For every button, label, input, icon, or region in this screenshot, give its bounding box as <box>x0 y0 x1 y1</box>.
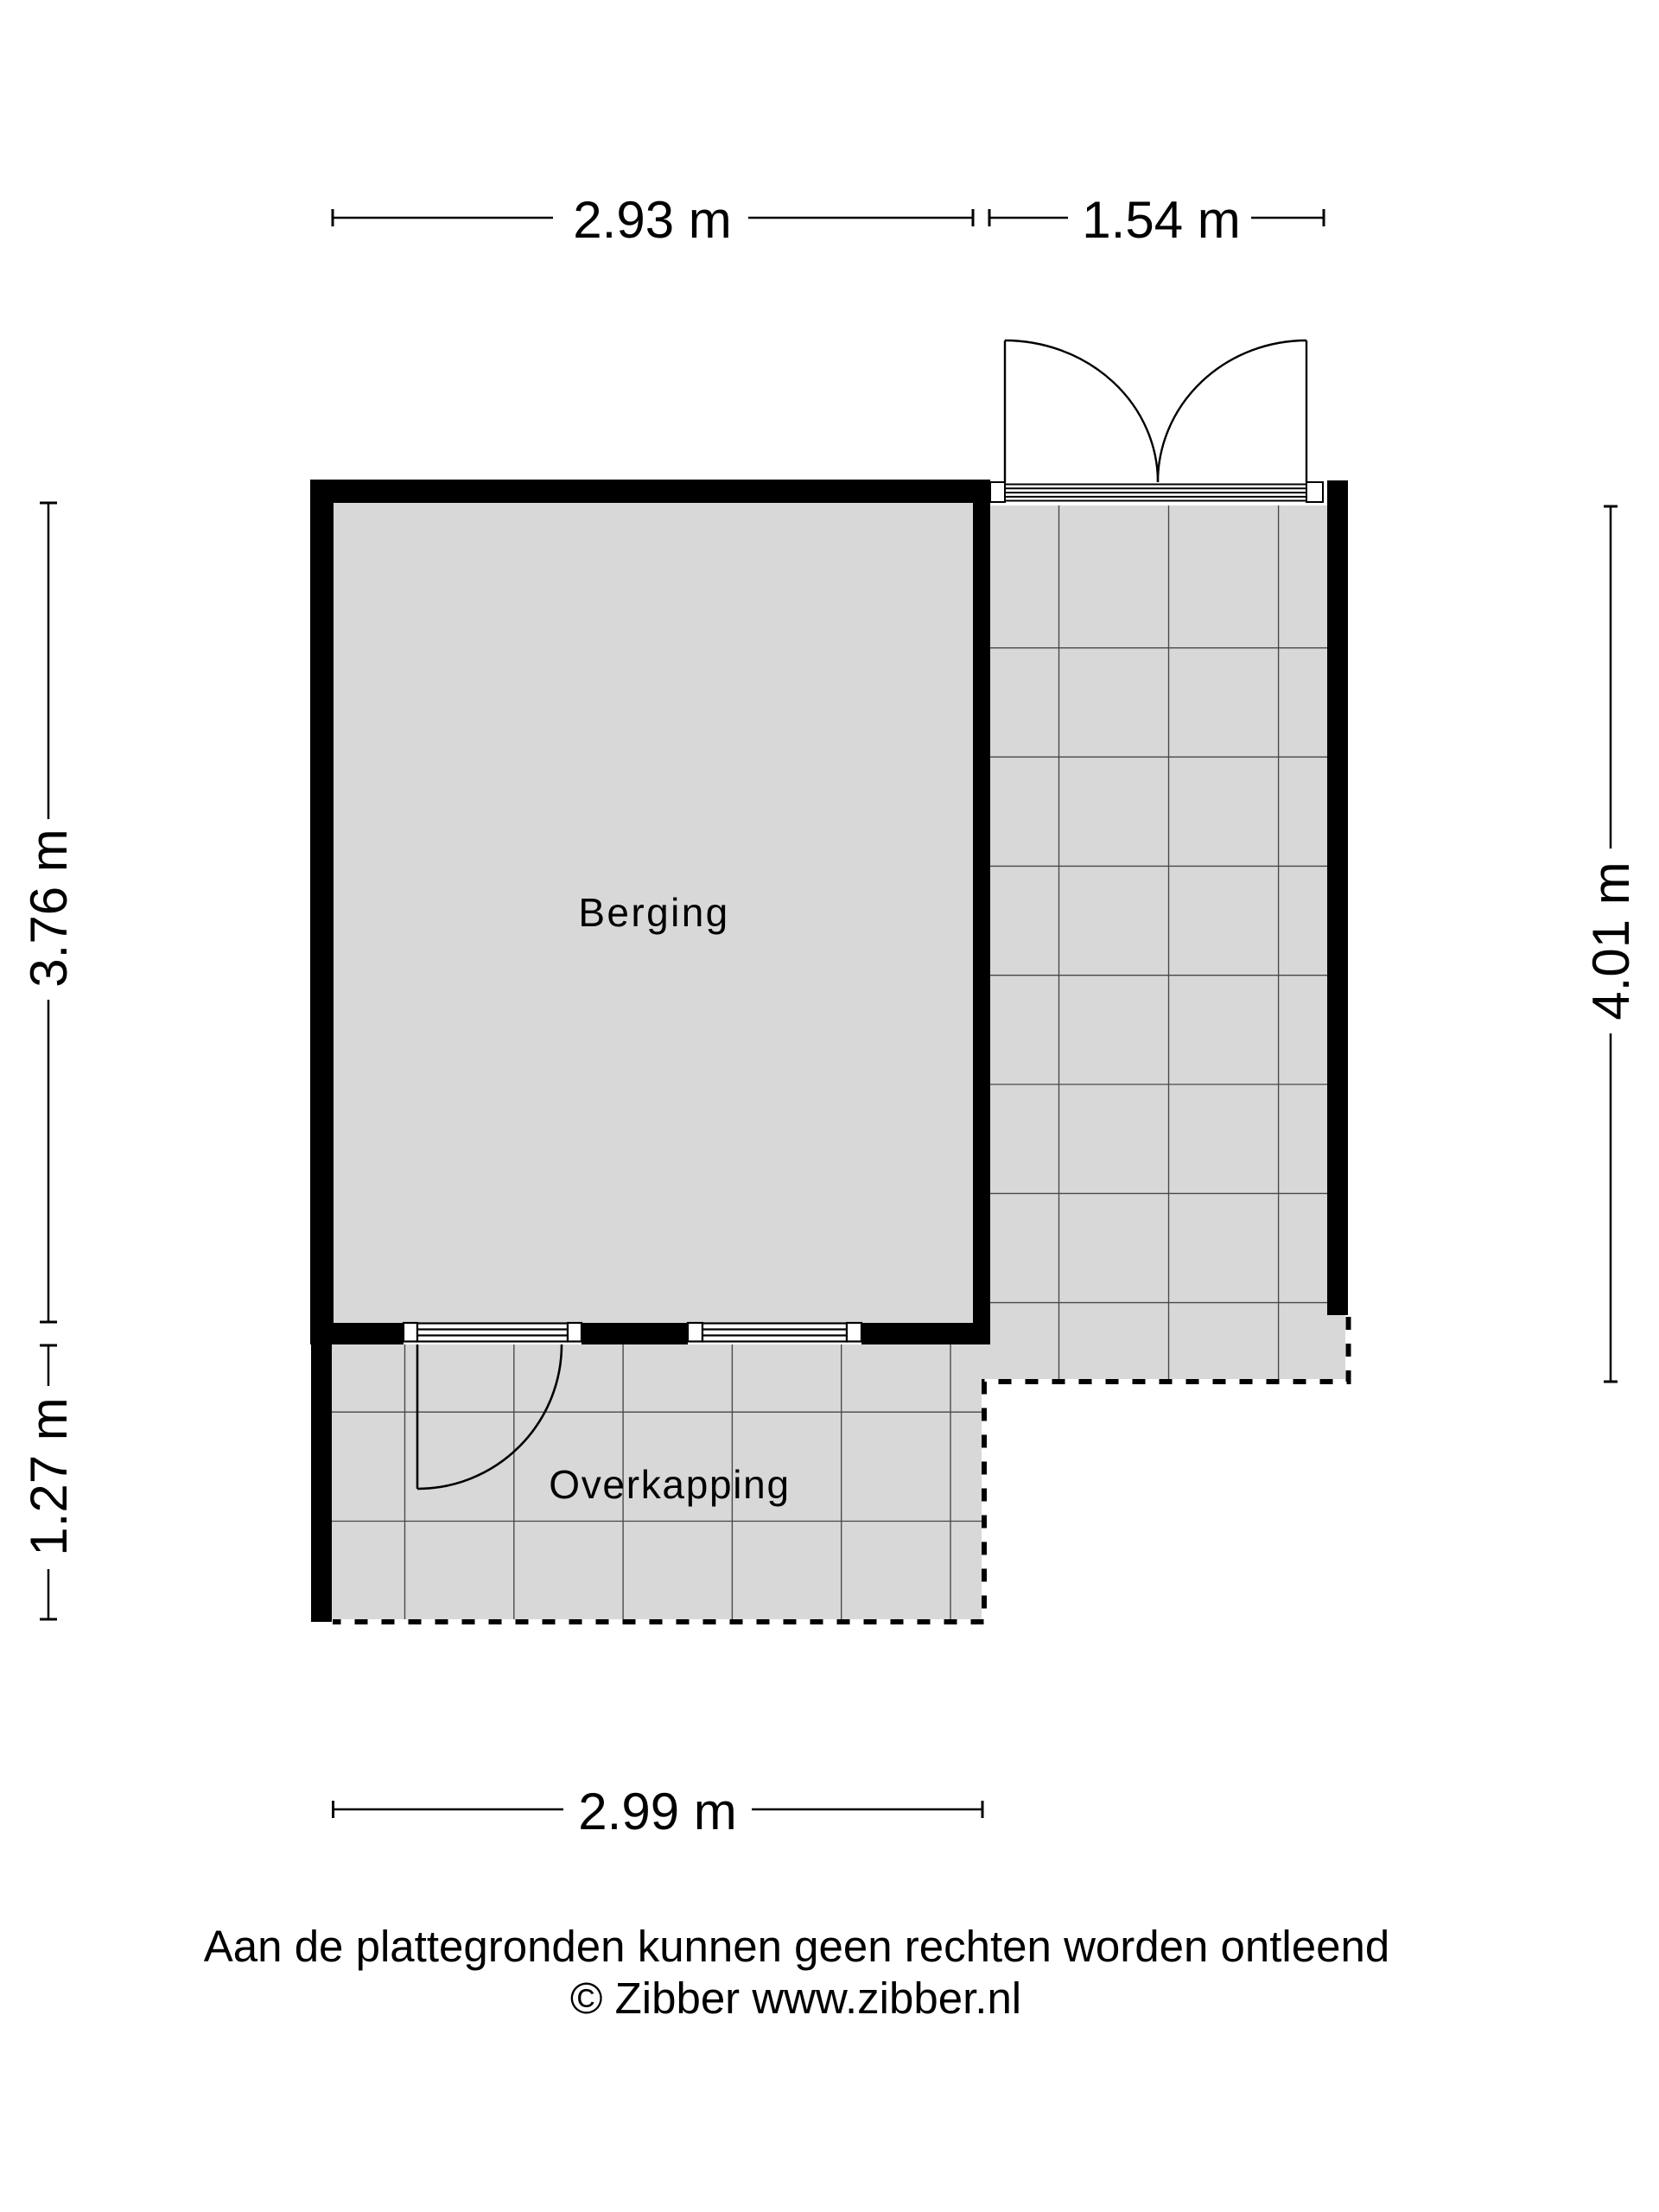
svg-text:1.27 m: 1.27 m <box>20 1397 78 1555</box>
svg-text:Overkapping: Overkapping <box>549 1462 791 1507</box>
svg-text:2.93 m: 2.93 m <box>573 191 731 249</box>
svg-text:Aan de plattegronden kunnen ge: Aan de plattegronden kunnen geen rechten… <box>204 1922 1389 1971</box>
svg-text:3.76 m: 3.76 m <box>20 829 78 987</box>
svg-text:4.01 m: 4.01 m <box>1582 861 1640 1020</box>
svg-text:© Zibber www.zibber.nl: © Zibber www.zibber.nl <box>570 1974 1021 2023</box>
svg-text:1.54 m: 1.54 m <box>1082 191 1240 249</box>
svg-text:Berging: Berging <box>578 890 729 935</box>
svg-text:2.99 m: 2.99 m <box>578 1783 736 1840</box>
